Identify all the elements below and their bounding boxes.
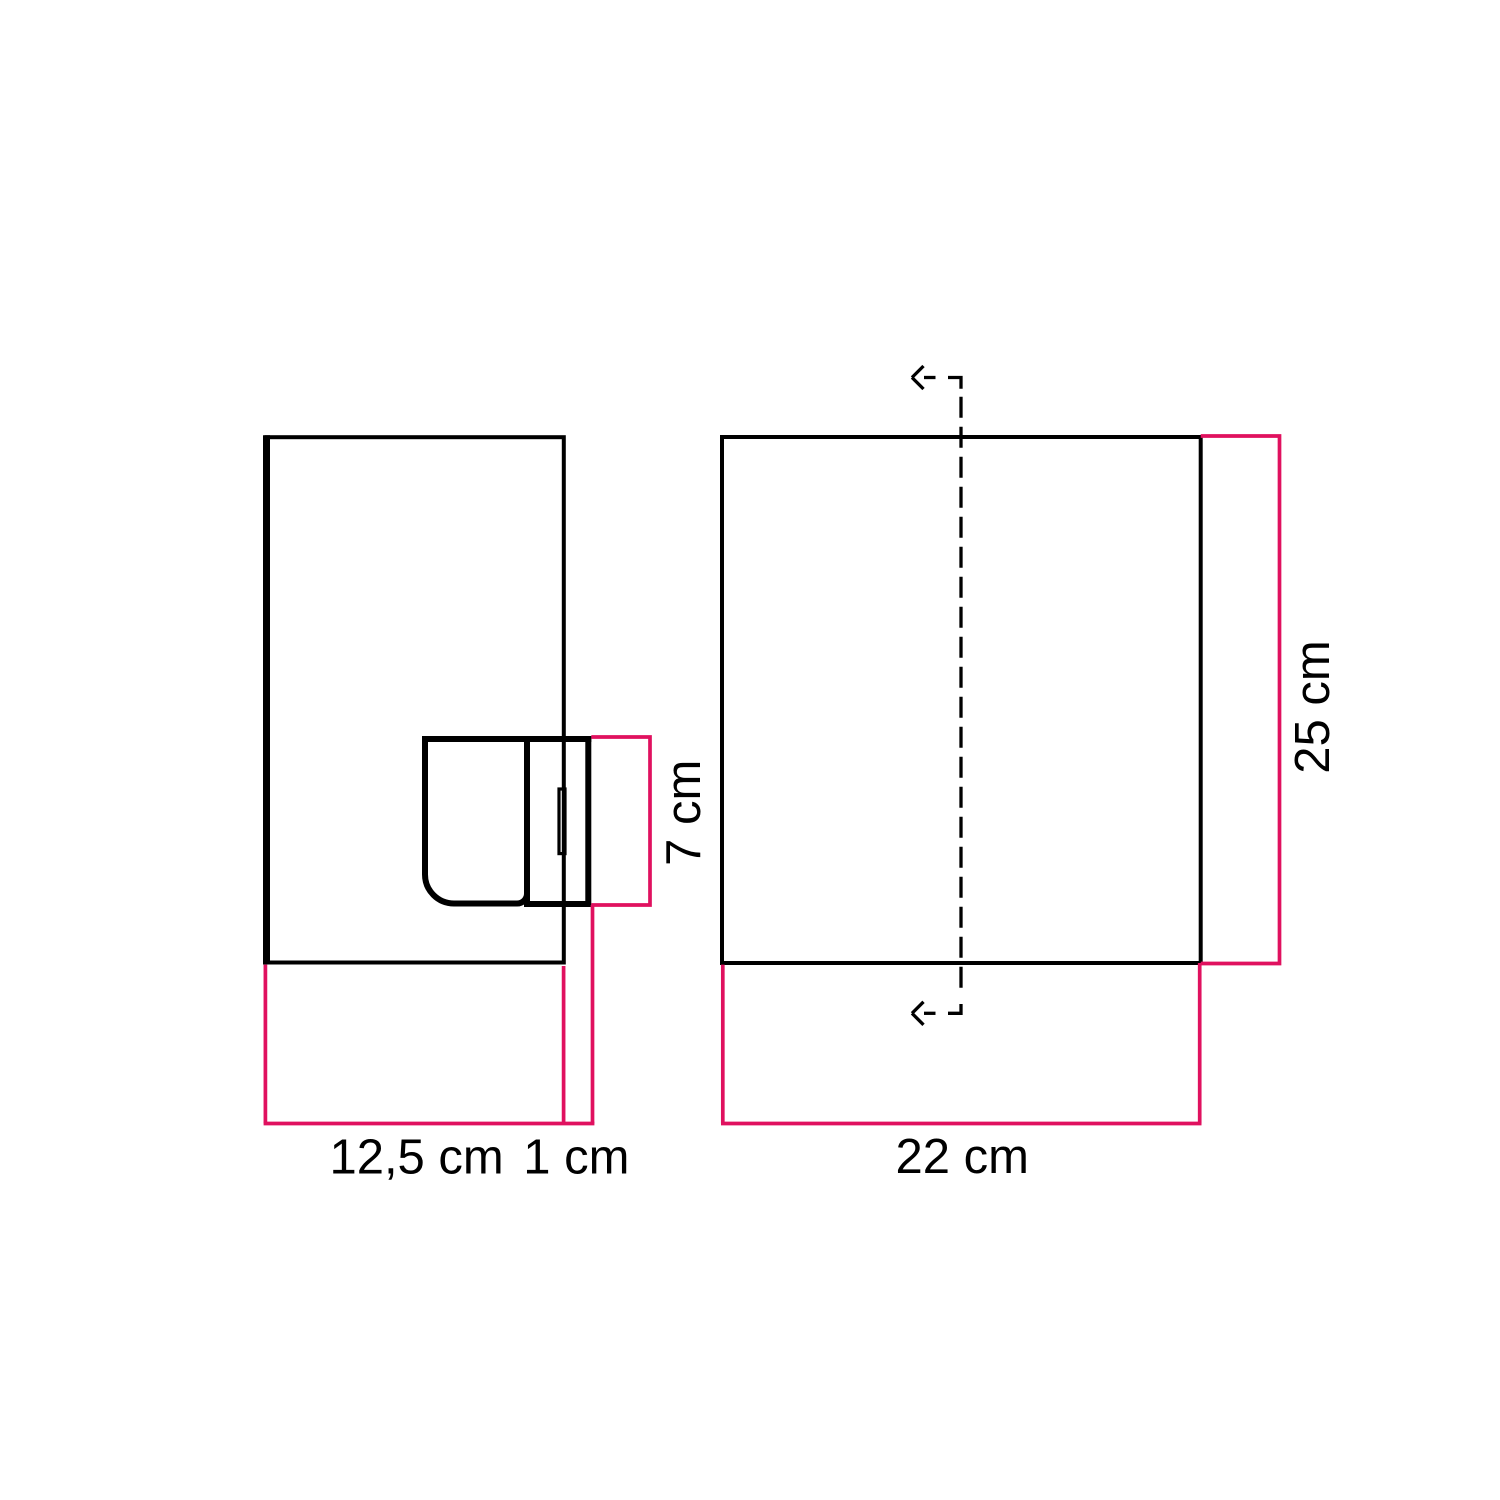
svg-text:7 cm: 7 cm [657,760,711,866]
svg-text:22 cm: 22 cm [895,1130,1028,1184]
svg-text:25 cm: 25 cm [1286,640,1340,773]
svg-text:1 cm: 1 cm [523,1131,629,1185]
svg-text:12,5 cm: 12,5 cm [329,1131,503,1185]
